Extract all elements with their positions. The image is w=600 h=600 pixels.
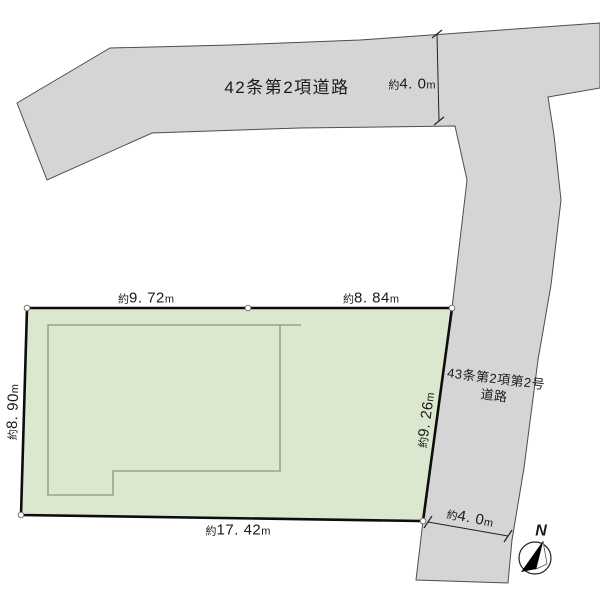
- corner-marker: [18, 512, 24, 518]
- dim-bottom-label: 約17. 42m: [206, 520, 271, 539]
- compass: [519, 541, 551, 574]
- dim-top-left-label: 約9. 72m: [118, 288, 174, 307]
- plot-shape: [21, 308, 452, 521]
- top-road-width-label: 約4. 0m: [388, 74, 435, 93]
- dim-left-label: 約8. 90m: [2, 384, 23, 441]
- compass-north-label: N: [535, 521, 547, 540]
- corner-marker: [420, 518, 426, 524]
- corner-marker: [24, 305, 30, 311]
- dim-top-right-label: 約8. 84m: [343, 288, 399, 307]
- top-road-label: 42条第2項道路: [224, 78, 349, 98]
- site-plan-diagram: 42条第2項道路 約4. 0m 約9. 72m 約8. 84m 約8. 90m …: [0, 0, 600, 600]
- corner-marker: [245, 305, 251, 311]
- corner-marker: [449, 305, 455, 311]
